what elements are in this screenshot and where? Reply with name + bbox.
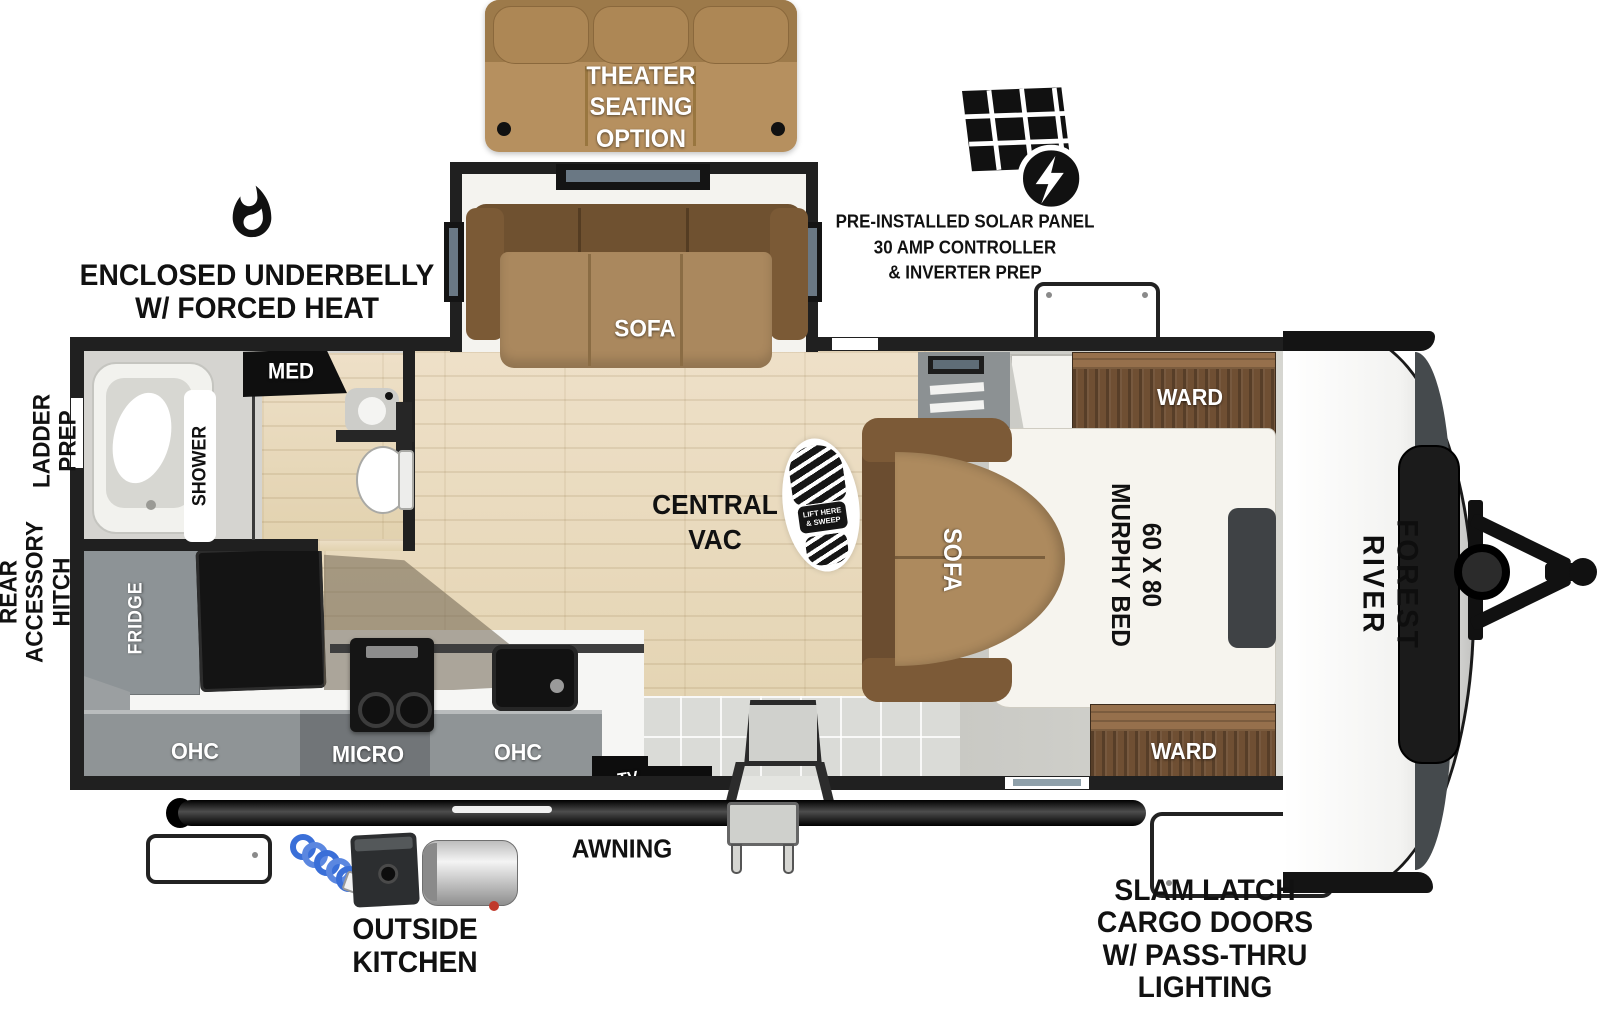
slide-sofa-arm-left <box>466 208 504 340</box>
slide-sofa-label: SOFA <box>614 317 675 344</box>
wardrobe-top-label: WARD <box>1157 385 1223 411</box>
awning-highlight <box>452 806 552 813</box>
shower-label: SHOWER <box>189 426 210 506</box>
entry-step-leg <box>731 844 742 874</box>
wall-bottom <box>70 776 1288 790</box>
wardrobe-bottom-label: WARD <box>1151 739 1217 765</box>
burner-icon <box>396 692 432 728</box>
med-label: MED <box>268 360 314 385</box>
ohc-left-label: OHC <box>171 739 219 765</box>
ohc-right-label: OHC <box>494 740 542 766</box>
hitch-coupler-knob <box>1569 558 1597 586</box>
flame-icon <box>223 177 281 249</box>
window-bottom <box>1005 777 1089 789</box>
murphy-bed-label: 60 X 80 MURPHY BED <box>1105 483 1167 647</box>
fridge-label: FRIDGE <box>125 581 146 654</box>
rv-floorplan-diagram: FRIDGE OHC MICRO OHC TV CENTRAL VAC LIFT… <box>0 0 1600 1018</box>
murphy-sofa-label: SOFA <box>938 528 966 592</box>
screw-icon <box>252 852 258 858</box>
bathroom-sink <box>345 388 399 434</box>
solar-note: PRE-INSTALLED SOLAR PANEL 30 AMP CONTROL… <box>836 210 1095 287</box>
cooktop <box>350 638 434 732</box>
vanity-counter-edge2 <box>336 430 414 442</box>
entry-step-leg <box>783 844 794 874</box>
toilet-tank <box>398 450 414 510</box>
wall-top-left <box>70 337 462 351</box>
cargo-door-bottom-left <box>146 834 272 884</box>
entry-door-opening <box>737 776 823 790</box>
slide-sofa-seat <box>500 252 772 368</box>
solar-panel-icon <box>938 80 1108 215</box>
outside-kitchen-label: OUTSIDE KITCHEN <box>352 913 477 979</box>
theater-seating-label: THEATER SEATING OPTION <box>586 61 695 155</box>
front-cap-top-trim <box>1283 331 1435 351</box>
slideout-window-left <box>444 222 464 302</box>
hitch-jack-icon <box>1454 544 1510 600</box>
micro-label: MICRO <box>332 742 404 768</box>
cooktop-control-panel <box>366 646 418 658</box>
entry-step-well <box>744 700 822 766</box>
screw-icon <box>1142 292 1148 298</box>
awning-label: AWNING <box>572 834 672 863</box>
brand-name: FOREST RIVER <box>1356 486 1423 683</box>
awning-tube <box>178 800 1146 826</box>
wall-top-right <box>806 337 1288 351</box>
outside-kitchen-tank <box>422 840 518 906</box>
slide-sofa-arm-right <box>770 208 808 340</box>
central-vac-label: CENTRAL VAC <box>652 487 778 557</box>
refrigerator <box>196 546 327 692</box>
entry-steps <box>727 802 799 846</box>
bedside-console <box>1228 508 1276 648</box>
rear-accessory-hitch-note: REAR ACCESSORY HITCH <box>0 521 76 663</box>
faucet-icon <box>550 679 564 693</box>
ladder-prep-note: LADDER PREP <box>30 394 83 488</box>
bathroom-door-opening <box>318 539 403 551</box>
underbelly-note: ENCLOSED UNDERBELLY W/ FORCED HEAT <box>80 259 435 325</box>
shower-handle-icon <box>146 500 156 510</box>
burner-icon <box>358 692 394 728</box>
window-top <box>832 338 878 350</box>
murphy-sofa-armrest-bottom <box>862 658 1012 702</box>
slideout-window-top <box>556 164 710 190</box>
screw-icon <box>1046 292 1052 298</box>
outside-kitchen-griddle <box>350 832 420 907</box>
slam-latch-note: SLAM LATCH CARGO DOORS W/ PASS-THRU LIGH… <box>1097 875 1313 1005</box>
kitchen-sink <box>492 645 578 711</box>
